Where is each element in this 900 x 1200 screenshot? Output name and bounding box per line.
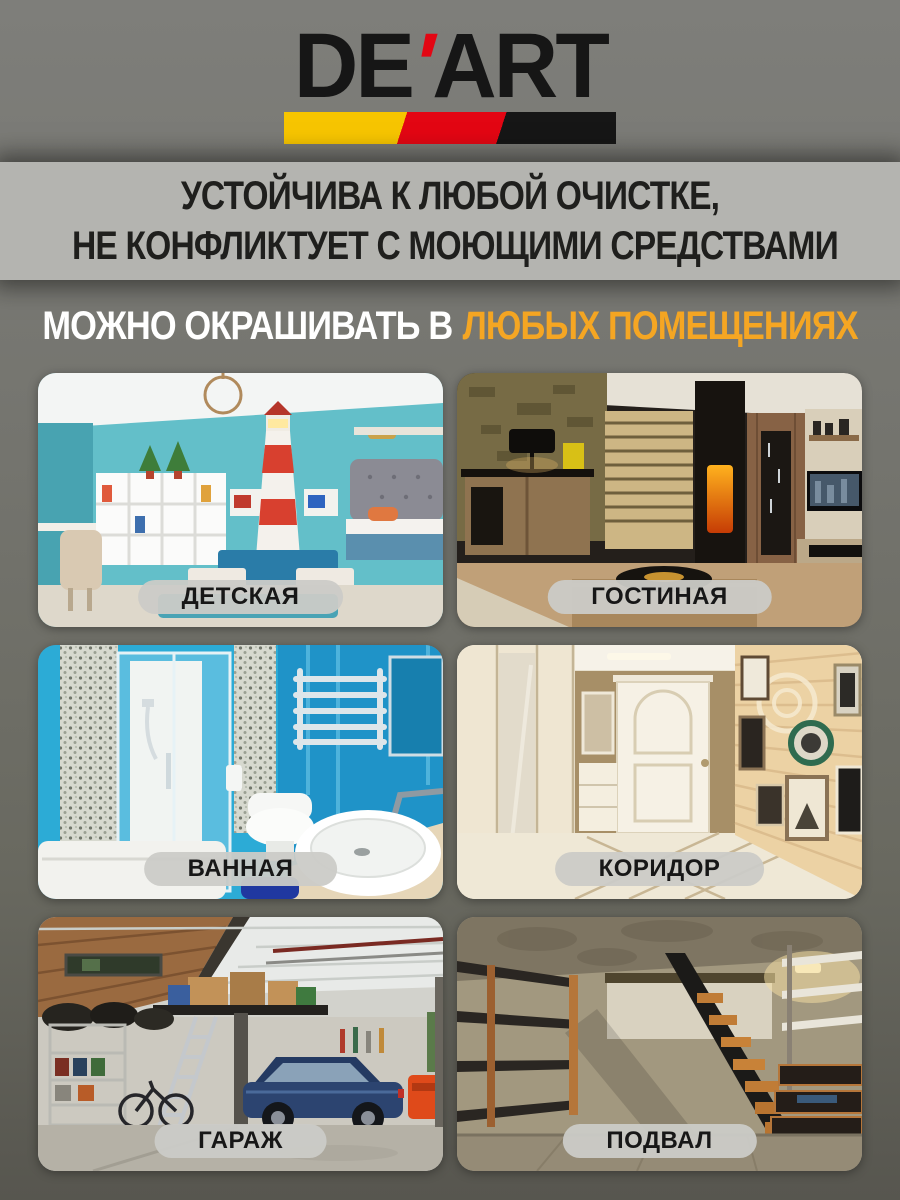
brand-logo-right: ART: [432, 15, 607, 117]
room-label-pill: ГАРАЖ: [154, 1124, 327, 1158]
room-label: ГОСТИНАЯ: [591, 583, 728, 610]
room-label-pill: КОРИДОР: [555, 852, 765, 886]
headline-white-part: МОЖНО ОКРАШИВАТЬ В: [42, 304, 452, 349]
room-label-pill: ПОДВАЛ: [562, 1124, 756, 1158]
brand-logo: DE'ART: [293, 24, 606, 109]
room-label: ДЕТСКАЯ: [182, 583, 300, 610]
room-card-basement: ПОДВАЛ: [457, 917, 862, 1171]
logo-area: DE'ART: [0, 0, 900, 162]
room-label-pill: ГОСТИНАЯ: [547, 580, 772, 614]
room-card-living: ГОСТИНАЯ: [457, 373, 862, 627]
room-grid: ДЕТСКАЯ: [38, 373, 862, 1171]
room-label-pill: ДЕТСКАЯ: [138, 580, 344, 614]
headline: МОЖНО ОКРАШИВАТЬ В ЛЮБЫХ ПОМЕЩЕНИЯХ: [0, 280, 900, 373]
room-label: ГАРАЖ: [198, 1127, 283, 1154]
claim-line-1: УСТОЙЧИВА К ЛЮБОЙ ОЧИСТКЕ,: [72, 171, 828, 221]
headline-orange-part: ЛЮБЫХ ПОМЕЩЕНИЯХ: [463, 304, 858, 349]
claim-banner: УСТОЙЧИВА К ЛЮБОЙ ОЧИСТКЕ, НЕ КОНФЛИКТУЕ…: [0, 162, 900, 280]
room-label: ВАННАЯ: [188, 855, 294, 882]
claim-line-2: НЕ КОНФЛИКТУЕТ С МОЮЩИМИ СРЕДСТВАМИ: [72, 221, 828, 271]
room-card-garage: ГАРАЖ: [38, 917, 443, 1171]
room-label: ПОДВАЛ: [606, 1127, 712, 1154]
room-card-bathroom: ВАННАЯ: [38, 645, 443, 899]
room-label-pill: ВАННАЯ: [144, 852, 338, 886]
room-card-children: ДЕТСКАЯ: [38, 373, 443, 627]
brand-logo-left: DE: [293, 15, 411, 117]
room-card-corridor: КОРИДОР: [457, 645, 862, 899]
room-label: КОРИДОР: [599, 855, 721, 882]
